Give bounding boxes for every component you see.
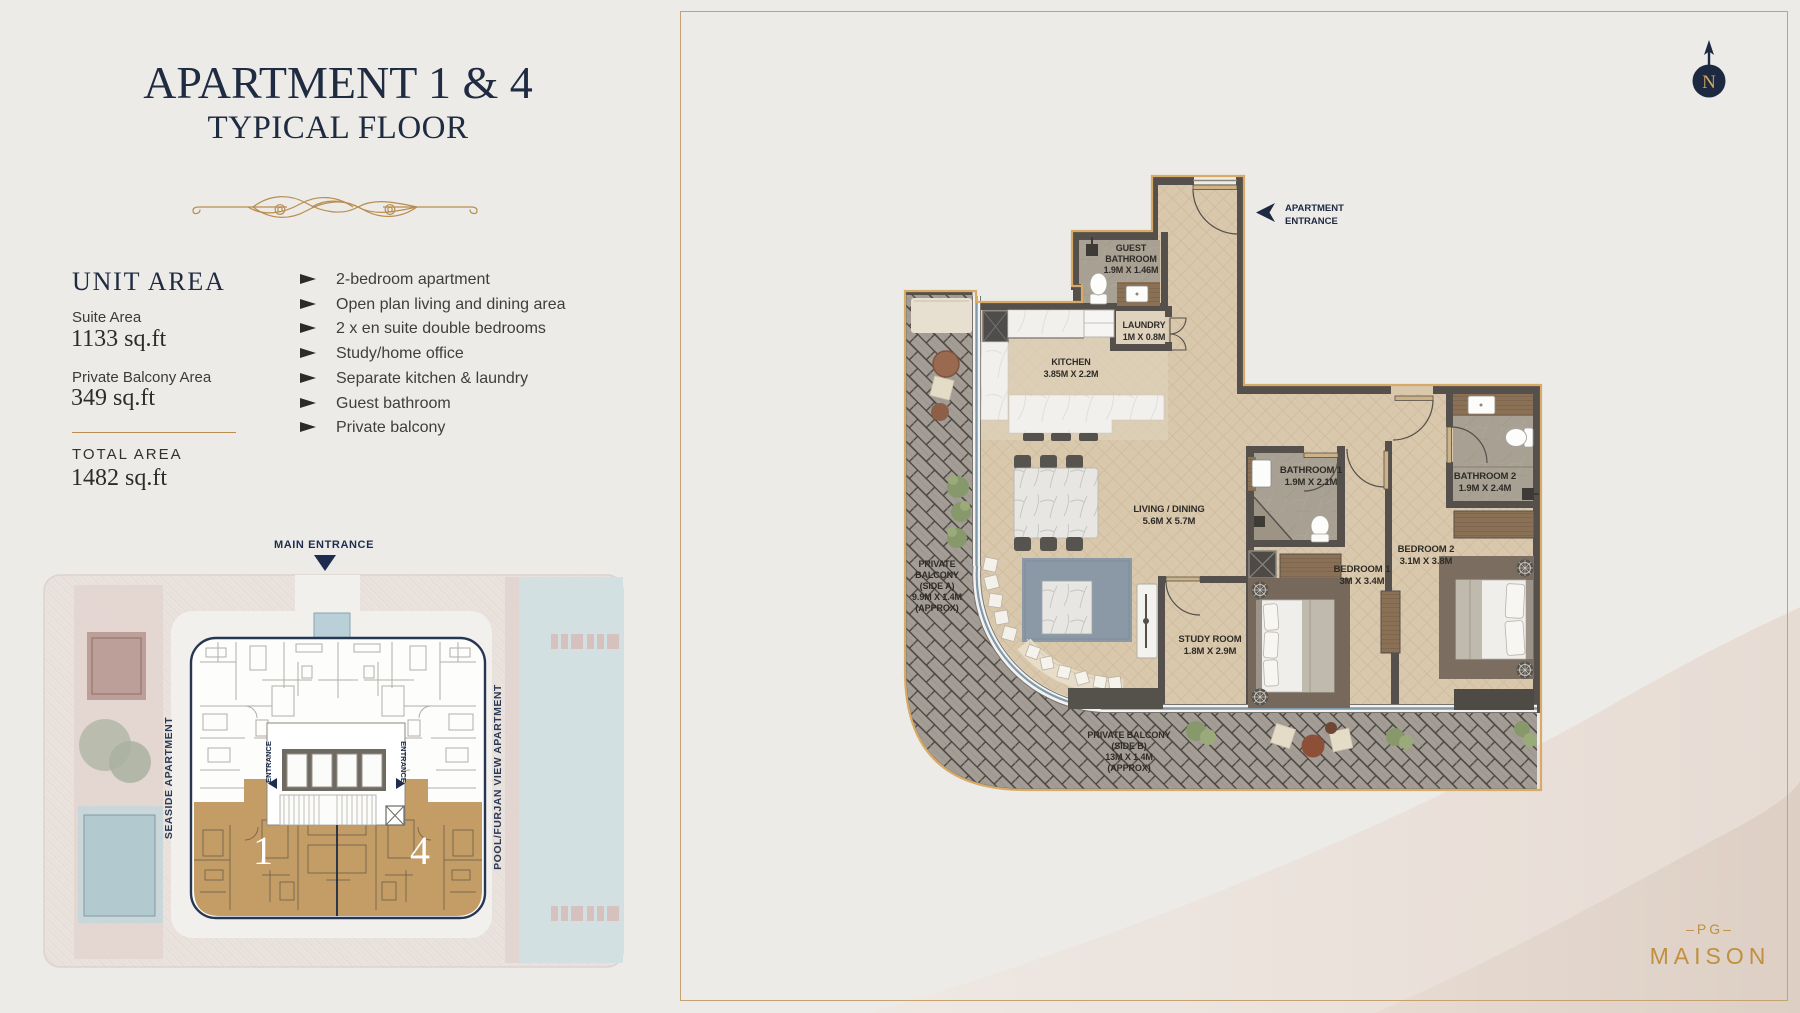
svg-text:3.85M X 2.2M: 3.85M X 2.2M bbox=[1044, 369, 1099, 379]
svg-text:POOL/FURJAN VIEW APARTMENT: POOL/FURJAN VIEW APARTMENT bbox=[492, 684, 504, 870]
svg-text:(SIDE A): (SIDE A) bbox=[920, 581, 955, 591]
svg-text:BATHROOM 1: BATHROOM 1 bbox=[1280, 465, 1343, 476]
svg-text:STUDY ROOM: STUDY ROOM bbox=[1178, 634, 1241, 645]
svg-text:1.9M X 2.1M: 1.9M X 2.1M bbox=[1285, 477, 1338, 488]
svg-text:KITCHEN: KITCHEN bbox=[1051, 357, 1090, 367]
svg-text:SEASIDE APARTMENT: SEASIDE APARTMENT bbox=[163, 717, 175, 839]
svg-text:BEDROOM 2: BEDROOM 2 bbox=[1398, 544, 1455, 555]
svg-text:(APPROX): (APPROX) bbox=[915, 603, 958, 613]
svg-text:PRIVATE BALCONY: PRIVATE BALCONY bbox=[1087, 730, 1170, 740]
svg-text:ENTRANCE: ENTRANCE bbox=[264, 741, 273, 783]
svg-text:9.9M X 1.4M: 9.9M X 1.4M bbox=[912, 592, 962, 602]
svg-text:1: 1 bbox=[253, 828, 273, 873]
svg-text:BATHROOM: BATHROOM bbox=[1105, 254, 1157, 264]
svg-text:(APPROX): (APPROX) bbox=[1107, 763, 1150, 773]
svg-text:APARTMENT: APARTMENT bbox=[1285, 203, 1344, 214]
svg-text:5.6M X 5.7M: 5.6M X 5.7M bbox=[1143, 516, 1196, 527]
svg-text:ENTRANCE: ENTRANCE bbox=[399, 741, 408, 783]
svg-text:3.1M X 3.8M: 3.1M X 3.8M bbox=[1400, 556, 1453, 567]
svg-text:(SIDE B): (SIDE B) bbox=[1111, 741, 1146, 751]
svg-text:PRIVATE: PRIVATE bbox=[919, 559, 956, 569]
svg-text:ENTRANCE: ENTRANCE bbox=[1285, 216, 1338, 227]
svg-text:MAIN ENTRANCE: MAIN ENTRANCE bbox=[274, 539, 374, 551]
svg-text:GUEST: GUEST bbox=[1116, 243, 1147, 253]
svg-text:BATHROOM 2: BATHROOM 2 bbox=[1454, 471, 1516, 482]
svg-text:LAUNDRY: LAUNDRY bbox=[1123, 320, 1166, 330]
svg-text:BEDROOM 1: BEDROOM 1 bbox=[1334, 564, 1391, 575]
svg-text:LIVING / DINING: LIVING / DINING bbox=[1133, 504, 1204, 515]
svg-text:1.9M X 1.46M: 1.9M X 1.46M bbox=[1104, 265, 1159, 275]
svg-text:4: 4 bbox=[410, 828, 430, 873]
svg-text:BALCONY: BALCONY bbox=[915, 570, 959, 580]
svg-text:3M X 3.4M: 3M X 3.4M bbox=[1339, 576, 1384, 587]
svg-text:1.9M X 2.4M: 1.9M X 2.4M bbox=[1459, 483, 1512, 494]
svg-text:1M X 0.8M: 1M X 0.8M bbox=[1123, 332, 1166, 342]
svg-text:1.8M X 2.9M: 1.8M X 2.9M bbox=[1184, 646, 1237, 657]
svg-text:13M X 1.4M: 13M X 1.4M bbox=[1105, 752, 1153, 762]
svg-text:N: N bbox=[1702, 72, 1716, 93]
